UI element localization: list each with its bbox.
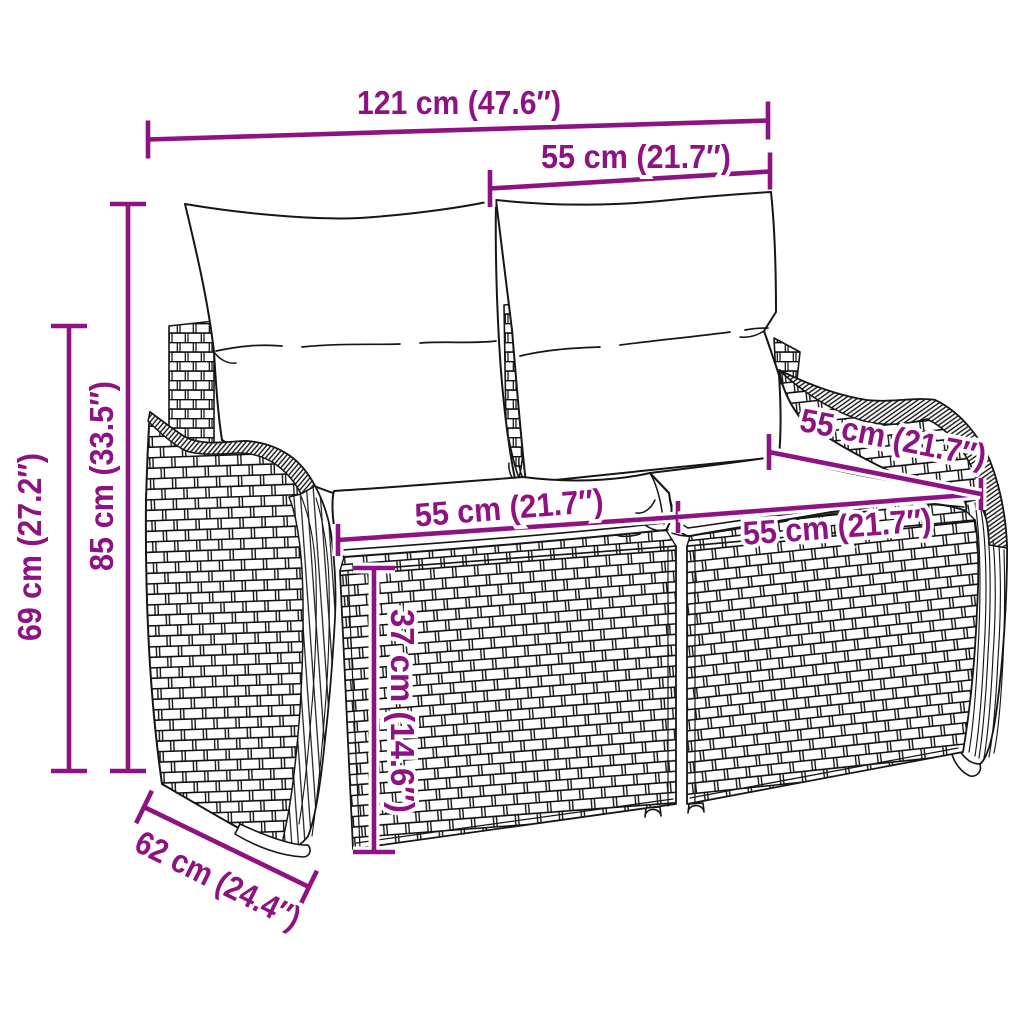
svg-text:69 cm (27.2″): 69 cm (27.2″) [11, 453, 48, 641]
svg-text:85 cm (33.5″): 85 cm (33.5″) [83, 381, 120, 571]
svg-text:37 cm (14.6″): 37 cm (14.6″) [384, 609, 421, 813]
svg-text:121 cm (47.6″): 121 cm (47.6″) [357, 84, 561, 121]
svg-text:55 cm (21.7″): 55 cm (21.7″) [541, 138, 731, 175]
